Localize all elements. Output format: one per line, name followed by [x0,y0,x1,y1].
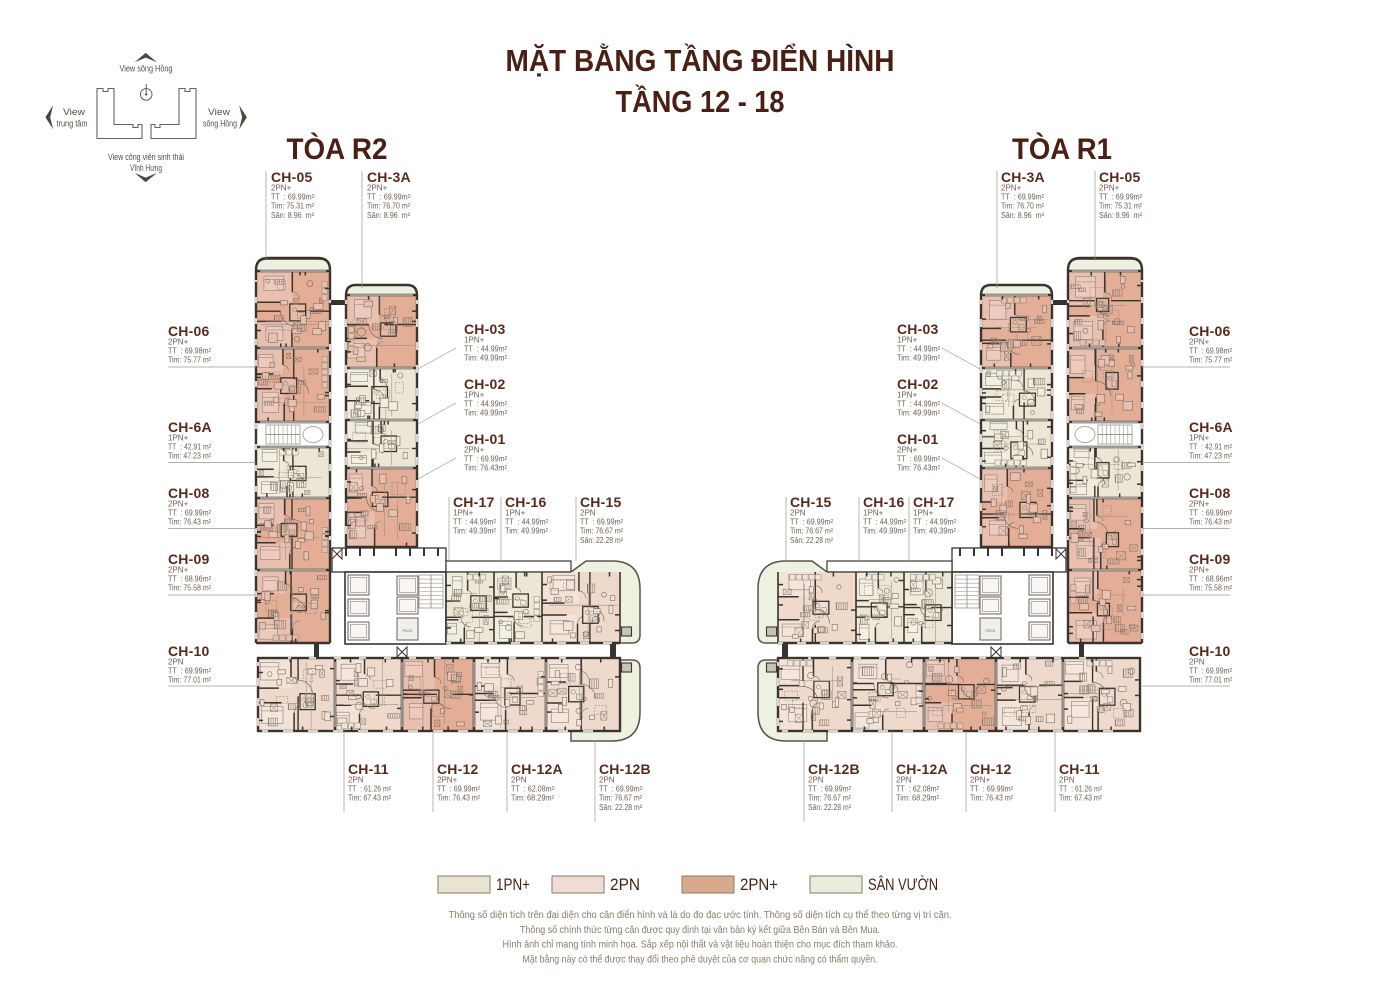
svg-text:Sân: 22.28 m²: Sân: 22.28 m² [790,536,833,545]
svg-text:Tim: 76.70 m²: Tim: 76.70 m² [1001,202,1044,211]
svg-text:Thông số chính thức từng căn đ: Thông số chính thức từng căn được quy đị… [520,924,880,936]
svg-text:1PN+: 1PN+ [913,509,934,518]
svg-text:2PN: 2PN [168,658,184,667]
svg-text:Tim: 49.99m²: Tim: 49.99m² [505,527,548,536]
svg-text:View: View [208,107,231,117]
svg-text:View sông Hồng: View sông Hồng [120,64,173,74]
svg-text:Tim: 49.99m²: Tim: 49.99m² [897,354,940,363]
svg-text:TT : 42.91 m²: TT : 42.91 m² [168,443,211,452]
svg-text:2PN: 2PN [1059,776,1075,785]
svg-text:TT : 69.99m²: TT : 69.99m² [790,518,833,527]
svg-text:2PN+: 2PN+ [168,500,189,509]
svg-text:Tim: 67.43 m²: Tim: 67.43 m² [348,794,391,803]
svg-text:Tim: 76.43 m²: Tim: 76.43 m² [168,518,211,527]
svg-text:2PN: 2PN [790,509,806,518]
svg-text:TT : 69.99m²: TT : 69.99m² [1001,193,1044,202]
svg-text:2PN+: 2PN+ [970,776,991,785]
svg-text:TT : 69.99m²: TT : 69.99m² [168,667,211,676]
svg-text:Tim: 49.99m²: Tim: 49.99m² [897,409,940,418]
svg-text:TT : 69.98m²: TT : 69.98m² [168,347,211,356]
svg-text:Tim: 75.77 m²: Tim: 75.77 m² [1189,356,1232,365]
svg-text:2PN+: 2PN+ [1099,184,1120,193]
svg-text:TT : 44.99m²: TT : 44.99m² [464,345,507,354]
svg-text:1PN+: 1PN+ [496,875,530,894]
svg-text:2PN+: 2PN+ [168,566,189,575]
svg-text:TT : 69.99m²: TT : 69.99m² [599,785,642,794]
svg-text:2PN: 2PN [610,875,640,894]
svg-text:Sân: 8.96 m²: Sân: 8.96 m² [1001,211,1044,220]
svg-text:TT : 68.96m²: TT : 68.96m² [168,575,211,584]
svg-text:2PN+: 2PN+ [367,184,388,193]
svg-text:1PN+: 1PN+ [505,509,526,518]
svg-text:2PN: 2PN [896,776,912,785]
svg-text:Tim: 75.58 m²: Tim: 75.58 m² [1189,584,1232,593]
svg-text:TT : 62.08m²: TT : 62.08m² [511,785,554,794]
svg-text:TT : 69.99m²: TT : 69.99m² [897,455,940,464]
svg-text:2PN+: 2PN+ [464,446,485,455]
svg-text:Sân: 8.96 m²: Sân: 8.96 m² [1099,211,1142,220]
svg-text:TT : 69.99m²: TT : 69.99m² [1189,509,1232,518]
svg-text:TT : 44.99m²: TT : 44.99m² [505,518,548,527]
svg-text:TT : 61.26 m²: TT : 61.26 m² [1059,785,1102,794]
svg-text:TÒA R1: TÒA R1 [1012,132,1112,166]
svg-text:TT : 69.99m²: TT : 69.99m² [580,518,623,527]
svg-text:Tim: 76.67 m²: Tim: 76.67 m² [580,527,623,536]
svg-text:2PN+: 2PN+ [1189,338,1210,347]
svg-text:Tim: 76.43 m²: Tim: 76.43 m² [437,794,480,803]
svg-text:Tim: 68.29m²: Tim: 68.29m² [511,794,554,803]
svg-text:1PN+: 1PN+ [168,434,189,443]
svg-text:Tim: 75.31 m²: Tim: 75.31 m² [1099,202,1142,211]
svg-text:TT : 68.96m²: TT : 68.96m² [1189,575,1232,584]
svg-text:Thông số diện tích trên đại di: Thông số diện tích trên đại diện cho căn… [449,909,952,921]
svg-text:2PN+: 2PN+ [1189,500,1210,509]
svg-text:TT : 44.99m²: TT : 44.99m² [453,518,496,527]
svg-text:2PN: 2PN [580,509,596,518]
svg-text:trung tâm: trung tâm [57,119,88,129]
svg-text:TT : 44.99m²: TT : 44.99m² [897,345,940,354]
svg-text:2PN+: 2PN+ [740,875,778,894]
svg-text:TT : 44.99m²: TT : 44.99m² [863,518,906,527]
svg-text:1PN+: 1PN+ [1189,434,1210,443]
svg-text:2PN: 2PN [808,776,824,785]
svg-text:Tim: 49.99m²: Tim: 49.99m² [464,409,507,418]
svg-text:Tim: 49.99m²: Tim: 49.99m² [863,527,906,536]
svg-text:Sân: 8.96 m²: Sân: 8.96 m² [271,211,314,220]
svg-text:TT : 69.99m²: TT : 69.99m² [970,785,1013,794]
svg-text:TT : 69.98m²: TT : 69.98m² [1189,347,1232,356]
svg-text:View: View [63,107,86,117]
svg-text:Tim: 75.31 m²: Tim: 75.31 m² [271,202,314,211]
svg-text:sông Hồng: sông Hồng [203,119,237,129]
svg-text:TT : 61.26 m²: TT : 61.26 m² [348,785,391,794]
svg-text:Tim: 76.43 m²: Tim: 76.43 m² [970,794,1013,803]
svg-text:1PN+: 1PN+ [863,509,884,518]
svg-text:2PN+: 2PN+ [1001,184,1022,193]
svg-text:Sân: 22.28 m²: Sân: 22.28 m² [599,803,642,812]
svg-text:TT : 44.99m²: TT : 44.99m² [897,400,940,409]
svg-text:2PN+: 2PN+ [271,184,292,193]
svg-text:TT : 69.99m²: TT : 69.99m² [271,193,314,202]
svg-text:Tim: 67.43 m²: Tim: 67.43 m² [1059,794,1102,803]
svg-text:2PN: 2PN [348,776,364,785]
svg-text:Tim: 49.39m²: Tim: 49.39m² [913,527,956,536]
svg-text:TT : 44.99m²: TT : 44.99m² [464,400,507,409]
svg-text:TT : 69.99m²: TT : 69.99m² [1189,667,1232,676]
svg-text:2PN+: 2PN+ [437,776,458,785]
svg-text:Tim: 68.29m²: Tim: 68.29m² [896,794,939,803]
svg-text:Tim: 76.67 m²: Tim: 76.67 m² [790,527,833,536]
svg-text:SÂN VƯỜN: SÂN VƯỜN [868,875,938,894]
svg-text:Tim: 76.67 m²: Tim: 76.67 m² [808,794,851,803]
svg-text:2PN: 2PN [511,776,527,785]
svg-text:Tim: 49.99m²: Tim: 49.99m² [464,354,507,363]
svg-text:Sân: 22.28 m²: Sân: 22.28 m² [580,536,623,545]
svg-text:TT : 69.99m²: TT : 69.99m² [437,785,480,794]
svg-text:Tim: 75.58 m²: Tim: 75.58 m² [168,584,211,593]
svg-text:2PN+: 2PN+ [1189,566,1210,575]
svg-text:Tim: 49.39m²: Tim: 49.39m² [453,527,496,536]
svg-text:TT : 62.08m²: TT : 62.08m² [896,785,939,794]
svg-text:Vĩnh Hưng: Vĩnh Hưng [130,163,162,173]
svg-text:Tim: 76.70 m²: Tim: 76.70 m² [367,202,410,211]
svg-text:1PN+: 1PN+ [453,509,474,518]
svg-text:TT : 69.99m²: TT : 69.99m² [168,509,211,518]
svg-text:Tim: 47.23 m²: Tim: 47.23 m² [1189,452,1232,461]
svg-text:TT : 69.99m²: TT : 69.99m² [464,455,507,464]
svg-text:TT : 69.99m²: TT : 69.99m² [367,193,410,202]
svg-text:Tim: 77.01 m²: Tim: 77.01 m² [1189,676,1232,685]
svg-text:TT : 69.99m²: TT : 69.99m² [808,785,851,794]
svg-text:2PN: 2PN [599,776,615,785]
svg-text:2PN: 2PN [1189,658,1205,667]
svg-text:MẶT BẰNG TẦNG ĐIỂN HÌNH: MẶT BẰNG TẦNG ĐIỂN HÌNH [506,43,895,78]
svg-text:TT : 42.91 m²: TT : 42.91 m² [1189,443,1232,452]
svg-text:2PN+: 2PN+ [897,446,918,455]
svg-text:Tim: 75.77 m²: Tim: 75.77 m² [168,356,211,365]
svg-text:1PN+: 1PN+ [897,336,918,345]
svg-text:TẦNG 12 - 18: TẦNG 12 - 18 [616,84,785,119]
svg-text:View công viên sinh thái: View công viên sinh thái [108,152,184,162]
svg-text:1PN+: 1PN+ [897,391,918,400]
svg-text:TT : 69.99m²: TT : 69.99m² [1099,193,1142,202]
svg-text:Tim: 76.67 m²: Tim: 76.67 m² [599,794,642,803]
svg-text:Sân: 22.28 m²: Sân: 22.28 m² [808,803,851,812]
svg-text:Tim: 77.01 m²: Tim: 77.01 m² [168,676,211,685]
svg-text:1PN+: 1PN+ [464,391,485,400]
svg-text:Mặt bằng này có thể được thay: Mặt bằng này có thể được thay đổi theo p… [523,952,878,965]
svg-text:1PN+: 1PN+ [464,336,485,345]
svg-text:Tim: 76.43m²: Tim: 76.43m² [897,464,940,473]
svg-text:TT : 44.99m²: TT : 44.99m² [913,518,956,527]
svg-text:Sân: 8.96 m²: Sân: 8.96 m² [367,211,410,220]
svg-text:Tim: 76.43 m²: Tim: 76.43 m² [1189,518,1232,527]
svg-text:PCCC: PCCC [403,629,413,633]
svg-text:2PN+: 2PN+ [168,338,189,347]
svg-text:Tim: 76.43m²: Tim: 76.43m² [464,464,507,473]
svg-text:Tim: 47.23 m²: Tim: 47.23 m² [168,452,211,461]
svg-text:Hình ảnh chỉ mang tính minh họ: Hình ảnh chỉ mang tính minh họa. Sắp xếp… [503,938,898,951]
svg-text:PCCC: PCCC [986,629,996,633]
svg-text:TÒA R2: TÒA R2 [287,132,388,166]
